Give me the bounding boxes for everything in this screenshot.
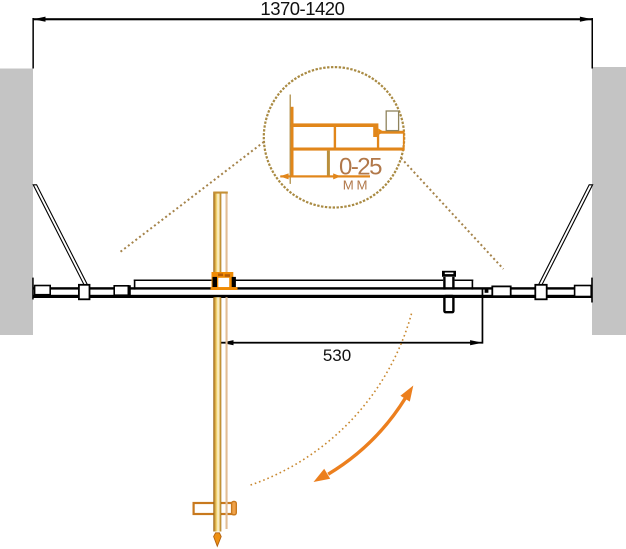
svg-text:530: 530 <box>323 346 351 365</box>
svg-text:1370-1420: 1370-1420 <box>260 0 344 19</box>
svg-text:0-25: 0-25 <box>339 154 382 181</box>
svg-text:ММ: ММ <box>343 178 371 193</box>
